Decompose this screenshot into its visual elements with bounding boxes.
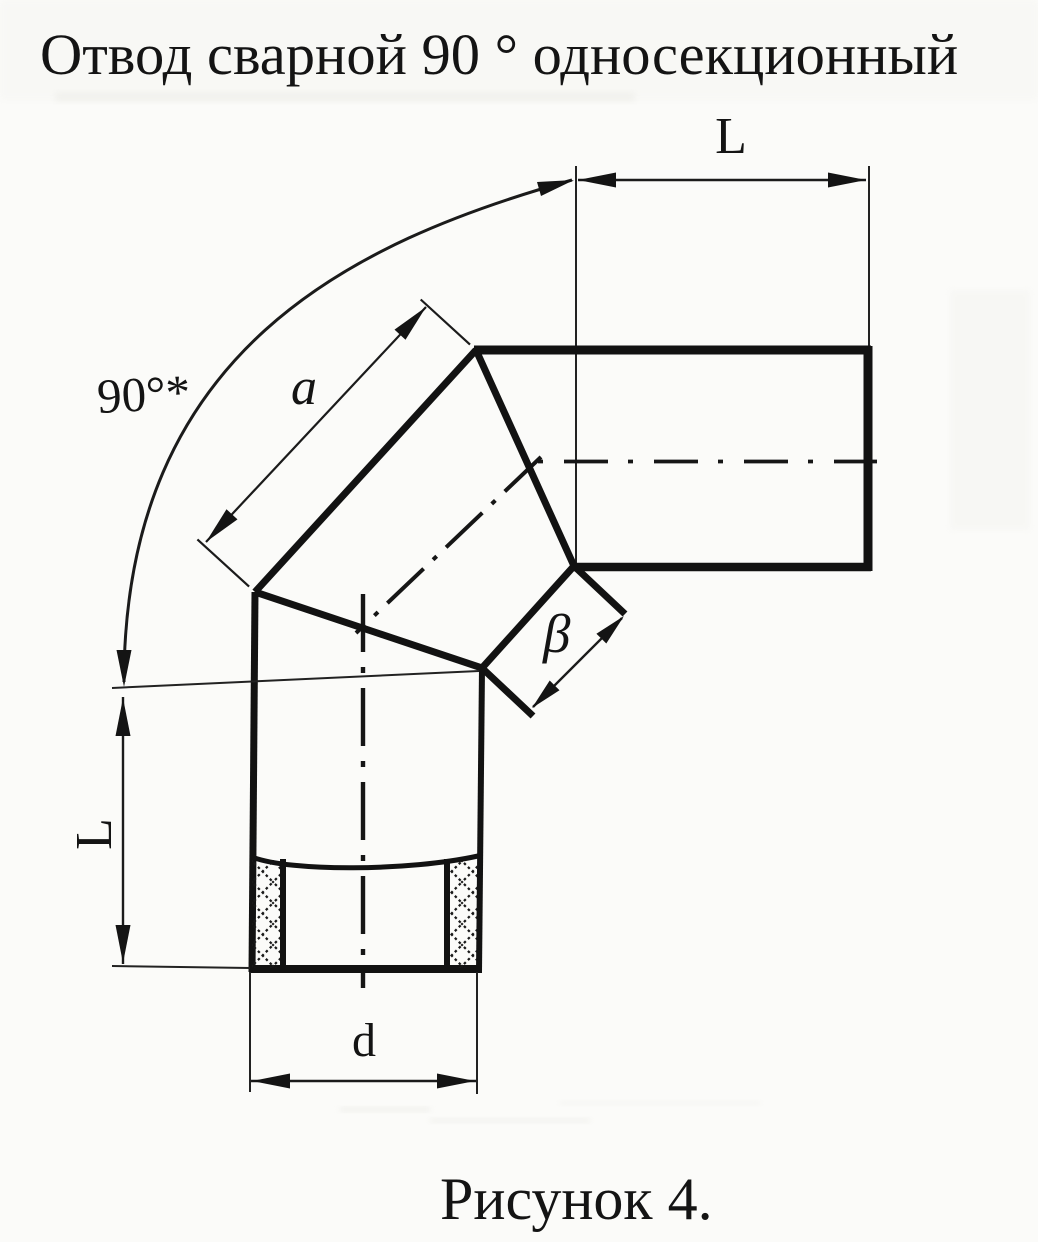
svg-text:Рисунок 4.: Рисунок 4.: [440, 1166, 713, 1232]
svg-text:90°*: 90°*: [96, 364, 192, 424]
svg-text:β: β: [542, 603, 571, 664]
svg-text:a: a: [291, 359, 317, 416]
svg-text:Отвод сварной 90 ° односекцион: Отвод сварной 90 ° односекционный: [40, 22, 958, 87]
svg-text:d: d: [352, 1014, 376, 1067]
svg-text:L: L: [715, 108, 747, 165]
svg-text:L: L: [66, 818, 123, 850]
